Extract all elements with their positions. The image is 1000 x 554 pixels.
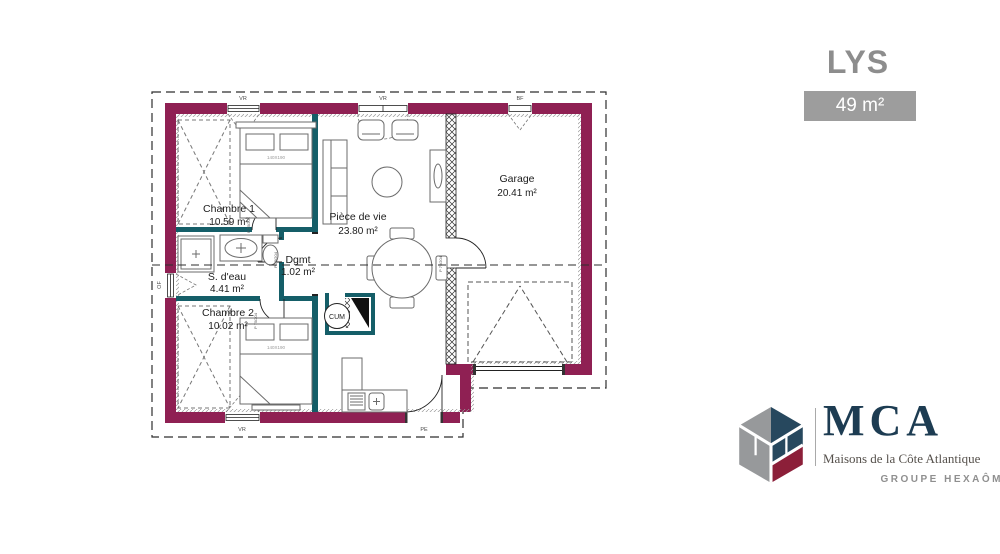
bed-size-label-2: 140X190 <box>267 345 286 350</box>
room-label-piece-de-vie: Pièce de vie <box>329 211 386 223</box>
window-label-vr-3: VR <box>238 427 246 433</box>
water-heater-label: CUM <box>329 314 345 321</box>
door-label-sdeau: P 75/204 <box>273 251 278 268</box>
brand-tagline: Maisons de la Côte Atlantique <box>823 451 1000 467</box>
room-label-sdeau: S. d'eau <box>208 271 246 283</box>
room-area-sdeau: 4.41 m² <box>210 284 245 295</box>
model-title: LYS <box>798 44 918 81</box>
sink <box>220 235 262 261</box>
window-label-bf: BF <box>516 96 524 102</box>
tv-cabinet <box>430 150 446 202</box>
room-label-chambre1: Chambre 1 <box>203 203 255 215</box>
garage-door-swing <box>468 282 572 362</box>
room-area-chambre1: 10.59 m² <box>209 217 249 228</box>
bed-size-label-1: 140X190 <box>267 155 286 160</box>
dining-table <box>367 228 447 308</box>
brand-name: MCA <box>823 396 943 446</box>
room-area-garage: 20.41 m² <box>497 188 537 199</box>
garage-partition-wall <box>446 114 456 364</box>
armchairs <box>358 120 418 140</box>
brand-logo: MCA Maisons de la Côte Atlantique GROUPE… <box>733 398 1000 510</box>
window-label-vr-1: VR <box>239 96 247 102</box>
floor-plan: CUM Chambre 1 10.59 m² S. d'eau 4.41 m² … <box>140 78 640 448</box>
door-label-chambre2: P 75/204 <box>253 312 258 329</box>
room-label-chambre2: Chambre 2 <box>202 307 254 319</box>
mca-cube-icon <box>735 406 807 486</box>
logo-divider <box>815 408 816 466</box>
window-label-vr-2: VR <box>379 96 387 102</box>
room-area-piece-de-vie: 23.80 m² <box>338 226 378 237</box>
bed-2 <box>240 318 312 410</box>
room-label-garage: Garage <box>499 173 534 185</box>
area-badge: 49 m² <box>804 91 916 121</box>
room-area-dgmt: 1.02 m² <box>281 267 316 278</box>
shower <box>178 236 214 272</box>
kitchen-counter <box>342 358 407 412</box>
room-area-chambre2: 10.02 m² <box>208 321 248 332</box>
water-heater-symbol: CUM <box>325 304 350 329</box>
room-label-dgmt: Dgmt <box>285 254 310 266</box>
window-label-of: OF <box>157 281 163 289</box>
entry-door-label: PE <box>420 427 428 433</box>
door-label-garage: P 75/204 <box>438 255 443 272</box>
coffee-table <box>372 167 402 197</box>
brand-group: GROUPE HEXAÔM <box>823 474 1000 485</box>
door-label-chambre1: P 75/204 <box>246 216 251 233</box>
